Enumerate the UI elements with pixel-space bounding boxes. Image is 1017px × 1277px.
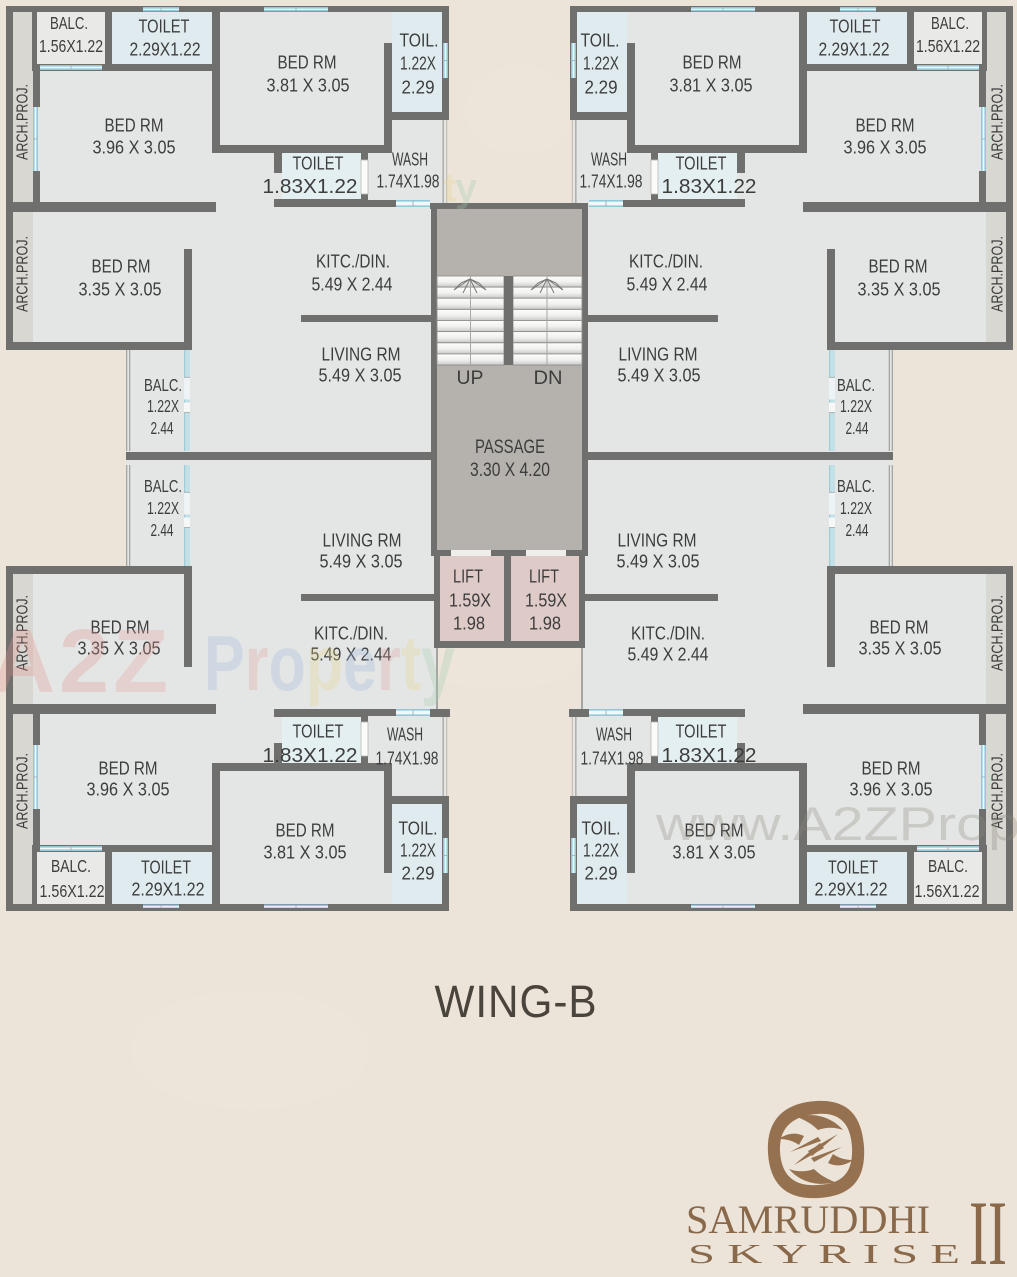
svg-text:ARCH.PROJ.: ARCH.PROJ. bbox=[14, 236, 31, 312]
svg-text:LIVING RM: LIVING RM bbox=[322, 344, 401, 365]
svg-text:3.81 X 3.05: 3.81 X 3.05 bbox=[267, 75, 350, 96]
svg-text:3.35 X 3.05: 3.35 X 3.05 bbox=[859, 638, 942, 659]
svg-text:BED RM: BED RM bbox=[683, 52, 742, 73]
svg-text:BALC.: BALC. bbox=[51, 856, 91, 876]
svg-text:1.74X1.98: 1.74X1.98 bbox=[377, 171, 440, 192]
svg-text:BED RM: BED RM bbox=[99, 758, 158, 779]
svg-text:5.49 X 3.05: 5.49 X 3.05 bbox=[618, 365, 701, 386]
svg-text:1.59X: 1.59X bbox=[449, 590, 491, 611]
svg-text:BED RM: BED RM bbox=[856, 115, 915, 136]
svg-text:BALC.: BALC. bbox=[931, 13, 969, 33]
svg-text:1.22X: 1.22X bbox=[400, 53, 436, 74]
svg-text:2.29: 2.29 bbox=[585, 77, 618, 98]
svg-text:TOILET: TOILET bbox=[141, 857, 191, 878]
svg-text:1.22X: 1.22X bbox=[840, 498, 872, 518]
svg-text:2.29X1.22: 2.29X1.22 bbox=[815, 879, 888, 900]
svg-text:TOILET: TOILET bbox=[830, 16, 881, 37]
svg-text:y: y bbox=[455, 166, 478, 210]
svg-text:PASSAGE: PASSAGE bbox=[475, 436, 545, 458]
svg-text:1.59X: 1.59X bbox=[525, 590, 567, 611]
svg-text:KITC./DIN.: KITC./DIN. bbox=[316, 251, 390, 272]
svg-text:TOILET: TOILET bbox=[676, 721, 727, 742]
svg-text:2.44: 2.44 bbox=[151, 520, 174, 540]
svg-text:ARCH.PROJ.: ARCH.PROJ. bbox=[989, 595, 1006, 671]
svg-text:DN: DN bbox=[534, 367, 563, 389]
svg-text:ARCH.PROJ.: ARCH.PROJ. bbox=[14, 753, 31, 829]
svg-text:TOILET: TOILET bbox=[293, 153, 344, 174]
svg-text:2.29X1.22: 2.29X1.22 bbox=[132, 879, 205, 900]
svg-text:TOIL.: TOIL. bbox=[581, 30, 620, 51]
svg-text:1.56X1.22: 1.56X1.22 bbox=[40, 881, 105, 901]
svg-text:1.56X1.22: 1.56X1.22 bbox=[915, 881, 980, 901]
svg-text:1.83X1.22: 1.83X1.22 bbox=[662, 176, 757, 198]
svg-text:WASH: WASH bbox=[392, 149, 428, 170]
svg-text:1.22X: 1.22X bbox=[400, 840, 436, 861]
svg-text:A2Z: A2Z bbox=[0, 612, 172, 712]
svg-text:3.35 X 3.05: 3.35 X 3.05 bbox=[858, 279, 941, 300]
svg-text:LIVING RM: LIVING RM bbox=[323, 530, 402, 551]
svg-text:LIVING RM: LIVING RM bbox=[618, 530, 697, 551]
svg-text:1.22X: 1.22X bbox=[840, 396, 872, 416]
svg-text:BALC.: BALC. bbox=[837, 375, 875, 395]
svg-text:3.81 X 3.05: 3.81 X 3.05 bbox=[670, 75, 753, 96]
svg-text:1.22X: 1.22X bbox=[147, 396, 179, 416]
svg-text:Property: Property bbox=[204, 619, 455, 707]
svg-text:2.29: 2.29 bbox=[402, 77, 435, 98]
svg-text:1.74X1.98: 1.74X1.98 bbox=[376, 748, 439, 769]
svg-text:1.83X1.22: 1.83X1.22 bbox=[662, 745, 757, 767]
svg-text:TOILET: TOILET bbox=[828, 857, 878, 878]
svg-text:5.49 X 3.05: 5.49 X 3.05 bbox=[319, 365, 402, 386]
svg-text:BALC.: BALC. bbox=[144, 476, 182, 496]
svg-text:WASH: WASH bbox=[591, 149, 627, 170]
svg-text:WASH: WASH bbox=[596, 724, 632, 745]
svg-text:BED RM: BED RM bbox=[276, 820, 335, 841]
svg-text:BALC.: BALC. bbox=[50, 13, 88, 33]
svg-text:1.22X: 1.22X bbox=[147, 498, 179, 518]
svg-text:1.98: 1.98 bbox=[453, 613, 485, 634]
svg-text:BALC.: BALC. bbox=[837, 476, 875, 496]
svg-text:LIVING RM: LIVING RM bbox=[619, 344, 698, 365]
svg-text:ARCH.PROJ.: ARCH.PROJ. bbox=[989, 236, 1006, 312]
svg-text:BALC.: BALC. bbox=[928, 856, 968, 876]
svg-text:2.29X1.22: 2.29X1.22 bbox=[819, 39, 890, 60]
svg-text:www.A2ZProp: www.A2ZProp bbox=[655, 797, 1017, 850]
svg-text:2.29: 2.29 bbox=[585, 863, 618, 884]
svg-text:BED RM: BED RM bbox=[870, 617, 929, 638]
svg-text:TOILET: TOILET bbox=[293, 721, 344, 742]
svg-text:LIFT: LIFT bbox=[453, 566, 483, 587]
svg-text:2.44: 2.44 bbox=[846, 520, 869, 540]
svg-text:1.22X: 1.22X bbox=[583, 53, 619, 74]
svg-text:BALC.: BALC. bbox=[144, 375, 182, 395]
svg-text:3.96 X 3.05: 3.96 X 3.05 bbox=[93, 137, 176, 158]
svg-text:3.81 X 3.05: 3.81 X 3.05 bbox=[264, 842, 347, 863]
svg-text:BED RM: BED RM bbox=[862, 758, 921, 779]
svg-text:1.56X1.22: 1.56X1.22 bbox=[916, 36, 980, 56]
svg-text:2.29X1.22: 2.29X1.22 bbox=[130, 39, 201, 60]
svg-text:TOIL.: TOIL. bbox=[400, 30, 439, 51]
svg-text:UP: UP bbox=[457, 367, 484, 389]
svg-text:ARCH.PROJ.: ARCH.PROJ. bbox=[989, 84, 1006, 160]
svg-text:2.44: 2.44 bbox=[151, 418, 174, 438]
svg-text:LIFT: LIFT bbox=[529, 566, 559, 587]
svg-text:ARCH.PROJ.: ARCH.PROJ. bbox=[14, 84, 31, 160]
svg-text:1.22X: 1.22X bbox=[583, 840, 619, 861]
svg-text:5.49 X 3.05: 5.49 X 3.05 bbox=[617, 551, 700, 572]
svg-text:3.30 X 4.20: 3.30 X 4.20 bbox=[470, 459, 550, 481]
svg-text:3.96 X 3.05: 3.96 X 3.05 bbox=[87, 779, 170, 800]
svg-text:1.83X1.22: 1.83X1.22 bbox=[263, 176, 358, 198]
svg-text:2.44: 2.44 bbox=[846, 418, 869, 438]
svg-text:1.98: 1.98 bbox=[529, 613, 561, 634]
svg-text:S K Y R I S E: S K Y R I S E bbox=[688, 1239, 960, 1269]
svg-text:WING-B: WING-B bbox=[435, 976, 598, 1027]
svg-text:WASH: WASH bbox=[387, 724, 423, 745]
svg-text:3.35 X 3.05: 3.35 X 3.05 bbox=[79, 279, 162, 300]
svg-text:5.49 X 2.44: 5.49 X 2.44 bbox=[628, 644, 709, 665]
svg-text:BED RM: BED RM bbox=[92, 256, 151, 277]
svg-text:1.83X1.22: 1.83X1.22 bbox=[263, 745, 358, 767]
svg-text:BED RM: BED RM bbox=[278, 52, 337, 73]
svg-text:SAMRUDDHI: SAMRUDDHI bbox=[686, 1197, 930, 1242]
svg-text:1.74X1.98: 1.74X1.98 bbox=[581, 748, 644, 769]
svg-text:KITC./DIN.: KITC./DIN. bbox=[629, 251, 703, 272]
svg-text:BED RM: BED RM bbox=[105, 115, 164, 136]
svg-text:TOIL.: TOIL. bbox=[582, 818, 621, 839]
svg-text:II: II bbox=[969, 1182, 1007, 1272]
svg-text:5.49 X 2.44: 5.49 X 2.44 bbox=[627, 274, 708, 295]
svg-text:TOILET: TOILET bbox=[676, 153, 727, 174]
svg-text:TOILET: TOILET bbox=[139, 16, 190, 37]
svg-text:5.49 X 2.44: 5.49 X 2.44 bbox=[312, 274, 393, 295]
svg-text:2.29: 2.29 bbox=[402, 863, 435, 884]
svg-text:3.96 X 3.05: 3.96 X 3.05 bbox=[844, 137, 927, 158]
svg-text:5.49 X 3.05: 5.49 X 3.05 bbox=[320, 551, 403, 572]
svg-text:KITC./DIN.: KITC./DIN. bbox=[631, 623, 705, 644]
svg-text:1.74X1.98: 1.74X1.98 bbox=[580, 171, 643, 192]
svg-text:1.56X1.22: 1.56X1.22 bbox=[39, 36, 103, 56]
svg-text:BED RM: BED RM bbox=[869, 256, 928, 277]
svg-text:TOIL.: TOIL. bbox=[399, 818, 438, 839]
